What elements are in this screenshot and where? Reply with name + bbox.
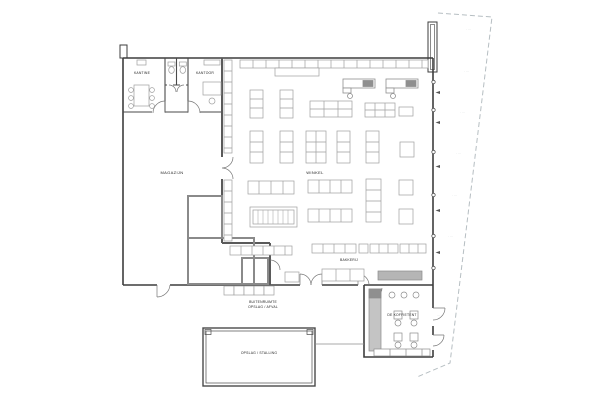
kantine-door-icon	[153, 101, 165, 113]
kantoor-door-icon	[188, 101, 200, 113]
entrance-door-right-icon	[311, 274, 322, 285]
svg-text:· ···: · ···	[448, 234, 453, 238]
kantoor-desk-icon	[203, 82, 221, 95]
label-buitenruimte-line2: OPSLAG / AFVAL	[238, 305, 288, 309]
svg-text:· ···: · ···	[460, 110, 465, 114]
checkout-1	[343, 79, 375, 99]
checkout-2	[386, 79, 418, 99]
room-label-koffietent: DE KOFFIETENT	[380, 313, 424, 317]
entrance-door-left-icon	[300, 274, 311, 285]
checkout-counters	[343, 79, 418, 99]
room-label-kantine: KANTINE	[128, 71, 156, 75]
svg-text:· ···: · ···	[452, 193, 457, 197]
room-label-winkel: WINKEL	[295, 170, 335, 175]
magazijn-swing-doors-icon	[222, 157, 233, 179]
outdoor-containers	[224, 286, 274, 295]
facade-tick-icons	[436, 91, 441, 254]
floorplan-canvas: · ··· · ··· · ··· · ··· · ··· · ··· ··· …	[0, 0, 600, 400]
kantine-sink-icon	[137, 60, 146, 65]
svg-text:· ···: · ···	[464, 69, 469, 73]
koffietent-servery-icon	[378, 271, 422, 280]
door-dimension-mark: ···	[437, 313, 440, 317]
room-label-magazijn: MAGAZIJN	[152, 170, 192, 175]
svg-text:· ···: · ···	[456, 151, 461, 155]
toilet-icons	[168, 62, 186, 73]
kantine-furniture	[129, 60, 155, 108]
svg-text:· ···: · ···	[466, 27, 471, 31]
label-outbuilding: OPSLAG / STALLING	[229, 351, 289, 355]
storage-door-icon	[270, 260, 280, 270]
wc1-door-icon	[169, 85, 176, 92]
kantoor-furniture	[203, 60, 221, 104]
magazijn-exit-door-icon	[157, 285, 170, 297]
outbuilding	[203, 328, 364, 386]
room-label-kantoor: KANTOOR	[191, 71, 219, 75]
wc2-door-icon	[177, 85, 184, 92]
kantoor-chair-icon	[209, 98, 215, 104]
floorplan-drawing: · ··· · ··· · ··· · ··· · ··· · ··· ···	[0, 0, 600, 400]
room-label-bakkerij: BAKKERIJ	[329, 258, 369, 262]
koffietent-door-2-icon	[433, 335, 444, 346]
label-buitenruimte-line1: BUITENRUIMTE	[238, 300, 288, 304]
boundary-dimension-marks: · ··· · ··· · ··· · ··· · ··· · ··· ···	[437, 27, 471, 317]
kantoor-cabinet-icon	[204, 60, 220, 65]
